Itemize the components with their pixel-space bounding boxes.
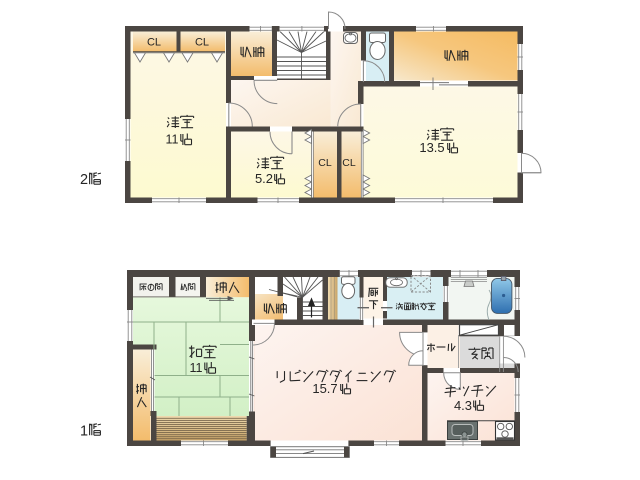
svg-text:CL: CL <box>147 37 161 49</box>
svg-text:11: 11 <box>166 133 179 147</box>
svg-text:CL: CL <box>318 157 332 169</box>
svg-text:4.3: 4.3 <box>454 398 472 413</box>
svg-text:CL: CL <box>195 37 209 49</box>
svg-text:CL: CL <box>342 157 356 169</box>
svg-text:13.5: 13.5 <box>419 140 444 155</box>
svg-text:5.2: 5.2 <box>255 171 273 186</box>
svg-text:1: 1 <box>80 424 88 440</box>
svg-text:2: 2 <box>80 172 88 188</box>
svg-text:11: 11 <box>190 361 203 375</box>
svg-text:15.7: 15.7 <box>312 381 337 396</box>
